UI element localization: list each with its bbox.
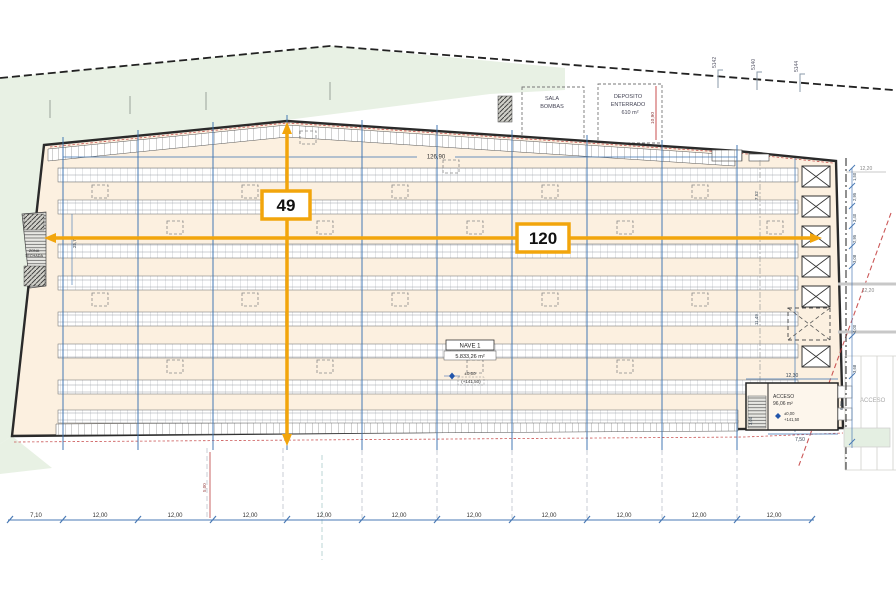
bottom-dim-2: 12,00 xyxy=(167,513,183,519)
right-chain-4: 3,08 xyxy=(852,254,857,263)
bottom-dim-8: 12,00 xyxy=(616,513,632,519)
height-dim-label: 49 xyxy=(277,196,296,215)
bottom-dim-0: 7,10 xyxy=(30,513,42,519)
deposito-label-1: DEPOSITO xyxy=(614,94,643,100)
bottom-dim-9: 12,00 xyxy=(691,513,707,519)
right-chain-6: 3,68 xyxy=(852,364,857,373)
site-plan-svg: 5142 5140 5144 SALA BOMBAS DEPOSITO ENTE… xyxy=(0,0,896,602)
survey-label-2: 5140 xyxy=(751,59,757,70)
bottom-dim-7: 12,00 xyxy=(541,513,557,519)
acceso-dim-right: 6,00 xyxy=(839,401,844,410)
survey-label-3: 5144 xyxy=(794,61,800,72)
acceso-dim-left: 3,00 xyxy=(748,416,753,425)
right-chain-2: 3,40 xyxy=(852,213,857,222)
sala-bombas-label-1: SALA xyxy=(545,96,559,102)
deposito-dim-label: 10,90 xyxy=(650,112,656,124)
acceso-area-label: 96,06 m² xyxy=(773,401,793,407)
sala-bombas-label-2: BOMBAS xyxy=(540,104,564,110)
bottom-dim-5: 12,00 xyxy=(391,513,407,519)
width-dim-label: 120 xyxy=(529,229,557,248)
bottom-dim-4: 12,00 xyxy=(316,513,332,519)
right-offset-b-label: 12,20 xyxy=(862,288,875,294)
acceso-level2-label: +141,50 xyxy=(784,417,800,422)
nave-name-label: NAVE 1 xyxy=(460,344,482,350)
inner-dim-a: 7,52 xyxy=(754,191,759,200)
plan-canvas: 5142 5140 5144 SALA BOMBAS DEPOSITO ENTE… xyxy=(0,0,896,602)
right-chain-0: 1,50 xyxy=(852,172,857,181)
bottom-dim-3: 12,00 xyxy=(242,513,258,519)
deposito-area-label: 610 m² xyxy=(621,110,638,116)
zona-techada-label-1: ZONA xyxy=(29,249,40,253)
nave-level2-label: (+141,50) xyxy=(461,379,481,384)
deposito-label-2: ENTERRADO xyxy=(611,102,646,108)
acceso-dim-top: 12,30 xyxy=(786,373,799,379)
right-chain-3: 2,95 xyxy=(852,234,857,243)
bottom-dim-10: 12,00 xyxy=(766,513,782,519)
acceso-level-label: ±0,00 xyxy=(784,411,795,416)
acceso-dim-bottom: 7,50 xyxy=(795,437,805,443)
acceso-room-label: ACCESO xyxy=(773,394,794,400)
nave-area-label: 5.833,26 m² xyxy=(455,354,485,360)
right-offset-a-label: 12,20 xyxy=(860,166,873,172)
zona-techada-label-2: TECHADA xyxy=(25,254,44,258)
bottom-dim-6: 12,00 xyxy=(466,513,482,519)
right-chain-1: 2,95 xyxy=(852,192,857,201)
bottom-dim-1: 12,00 xyxy=(92,513,108,519)
acceso-outside-label: ACCESO xyxy=(860,398,886,404)
right-chain-5: 4,00 xyxy=(852,324,857,333)
inner-dim-b: 11,49 xyxy=(754,314,759,325)
nave-level-label: ±0,00 xyxy=(464,371,476,376)
survey-label-1: 5142 xyxy=(712,57,718,68)
below-left-dim-label: 5,00 xyxy=(202,483,207,492)
